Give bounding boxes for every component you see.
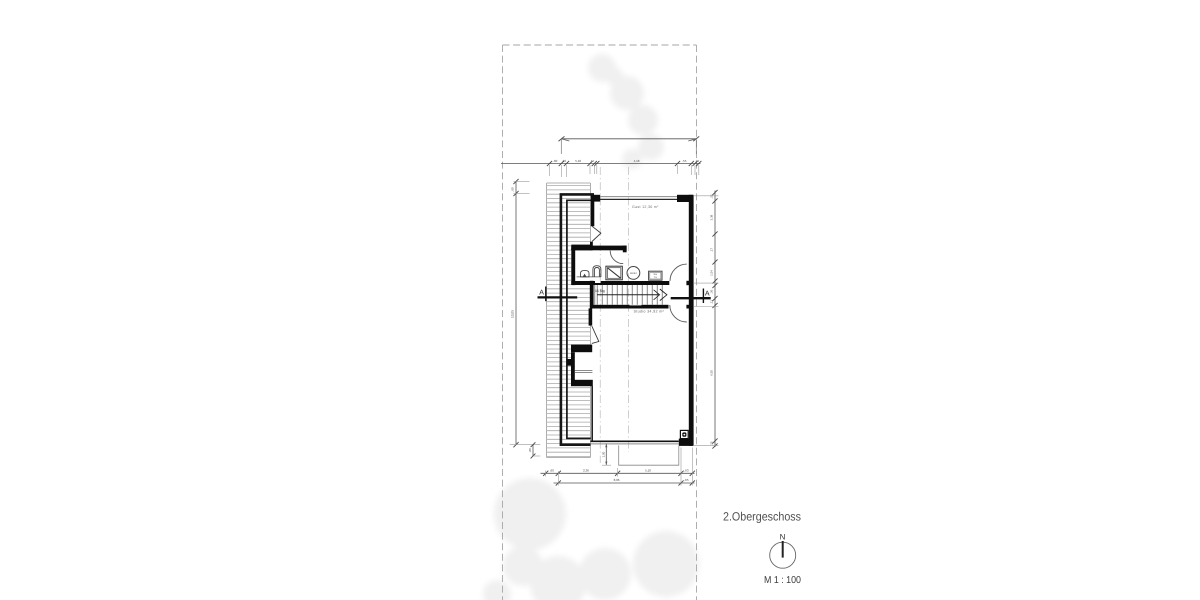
- svg-text:13,05: 13,05: [510, 310, 514, 318]
- svg-text:,11: ,11: [710, 300, 714, 304]
- svg-text:.60: .60: [553, 159, 558, 163]
- svg-text:16 Stg: 16 Stg: [595, 289, 605, 293]
- svg-text:6,50: 6,50: [710, 370, 714, 376]
- svg-text:,17: ,17: [590, 159, 595, 163]
- svg-text:A: A: [539, 289, 544, 296]
- svg-text:Boiler: Boiler: [630, 272, 637, 275]
- svg-text:,65: ,65: [684, 478, 689, 482]
- svg-text:1,00: 1,00: [601, 451, 605, 457]
- svg-text:,36: ,36: [710, 289, 714, 293]
- svg-text:3,38: 3,38: [710, 214, 714, 220]
- svg-text:1,54: 1,54: [710, 270, 714, 276]
- svg-text:.55: .55: [682, 159, 687, 163]
- svg-text:4,18: 4,18: [634, 159, 640, 163]
- svg-text:Tro: Tro: [654, 276, 658, 279]
- svg-text:2.Obergeschoss: 2.Obergeschoss: [723, 509, 801, 523]
- svg-text:.60: .60: [550, 469, 555, 473]
- svg-text:.20: .20: [562, 159, 567, 163]
- svg-text:5,10: 5,10: [645, 469, 651, 473]
- svg-text:,25: ,25: [710, 194, 714, 198]
- svg-text:Studio 34,92 m²: Studio 34,92 m²: [634, 310, 665, 314]
- svg-text:N: N: [780, 533, 786, 542]
- svg-text:,17: ,17: [710, 248, 714, 252]
- svg-text:M 1 : 100: M 1 : 100: [764, 575, 801, 586]
- svg-text:,60: ,60: [511, 187, 515, 192]
- svg-text:2,36: 2,36: [583, 469, 589, 473]
- svg-text:,80: ,80: [528, 448, 532, 452]
- svg-text:,24: ,24: [695, 159, 700, 163]
- svg-text:8,06: 8,06: [614, 478, 620, 482]
- svg-text:Gast 12,30 m²: Gast 12,30 m²: [632, 205, 659, 209]
- svg-text:,63: ,63: [684, 469, 689, 473]
- svg-text:5,10: 5,10: [575, 159, 581, 163]
- svg-text:,25: ,25: [710, 441, 714, 445]
